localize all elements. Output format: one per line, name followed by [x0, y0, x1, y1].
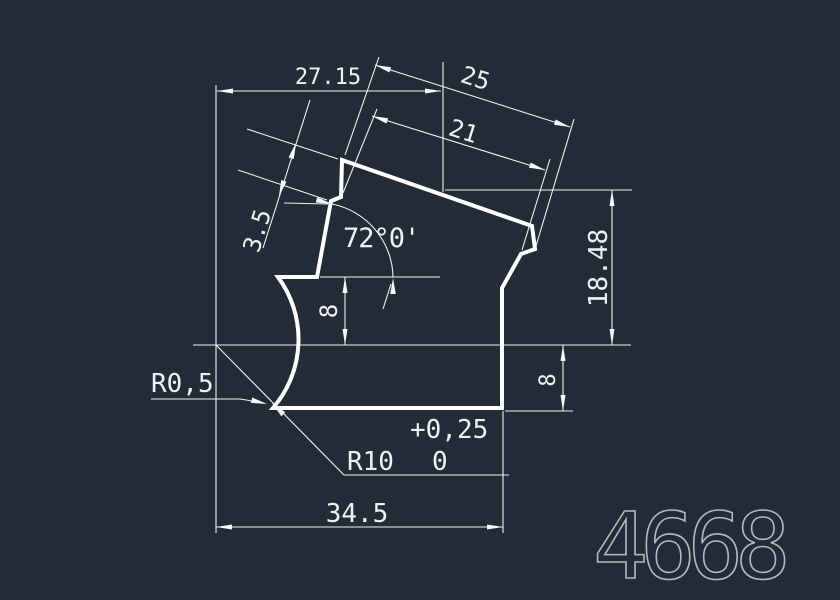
arrow-8r-bottom — [561, 395, 566, 411]
arrow-angle-lower — [390, 278, 396, 294]
dimension-arrowheads — [216, 65, 615, 530]
arrow-345-left — [216, 525, 232, 530]
arrow-345-right — [487, 525, 503, 530]
arrow-8r-top — [561, 345, 566, 361]
arrow-21-right — [529, 163, 545, 171]
cad-drawing-canvas: 27.15 25 21 3.5 72°0' 8 18.48 8 R0,5 R10… — [0, 0, 840, 600]
dim-text-8-left: 8 — [315, 304, 343, 318]
arrow-r05 — [251, 398, 267, 405]
dim-text-r10: R10 — [347, 447, 394, 477]
dim-text-1848: 18.48 — [584, 229, 614, 307]
dim-text-21: 21 — [445, 114, 481, 149]
arrow-25-right — [554, 120, 570, 128]
arrow-8l-bottom — [343, 329, 348, 345]
arrow-35-lower — [279, 180, 287, 196]
angle-arrow-tail-upper — [284, 203, 328, 204]
arrow-8l-top — [343, 277, 348, 293]
part-profile-outline — [273, 160, 535, 408]
arrow-1848-top — [610, 190, 615, 206]
dim-text-angle: 72°0' — [343, 223, 419, 254]
angle-arrow-tail-lower — [383, 284, 391, 309]
ext-line-21-left — [343, 109, 377, 193]
dim-text-r10-tol-lower: 0 — [432, 447, 448, 477]
arrow-1848-bottom — [610, 329, 615, 345]
dim-text-r05: R0,5 — [151, 369, 214, 399]
dim-text-8-right: 8 — [536, 373, 561, 386]
arrow-2715-left — [217, 89, 233, 94]
ext-line-25-right — [536, 119, 574, 246]
dim-text-2715: 27.15 — [295, 65, 361, 90]
dim-text-35: 3.5 — [238, 206, 277, 256]
dim-text-345: 34.5 — [326, 499, 389, 529]
cad-drawing-svg: 27.15 25 21 3.5 72°0' 8 18.48 8 R0,5 R10… — [0, 0, 840, 600]
dimension-texts: 27.15 25 21 3.5 72°0' 8 18.48 8 R0,5 R10… — [151, 61, 614, 529]
ext-line-21-right — [522, 159, 550, 250]
dim-text-25: 25 — [457, 61, 493, 96]
arrow-25-left — [375, 65, 391, 73]
arrow-2715-right — [425, 89, 441, 94]
arrow-21-left — [372, 116, 388, 124]
dim-text-r10-tol-upper: +0,25 — [410, 415, 488, 445]
arrow-35-upper — [289, 143, 297, 159]
part-number-text: 4668 — [593, 493, 785, 600]
